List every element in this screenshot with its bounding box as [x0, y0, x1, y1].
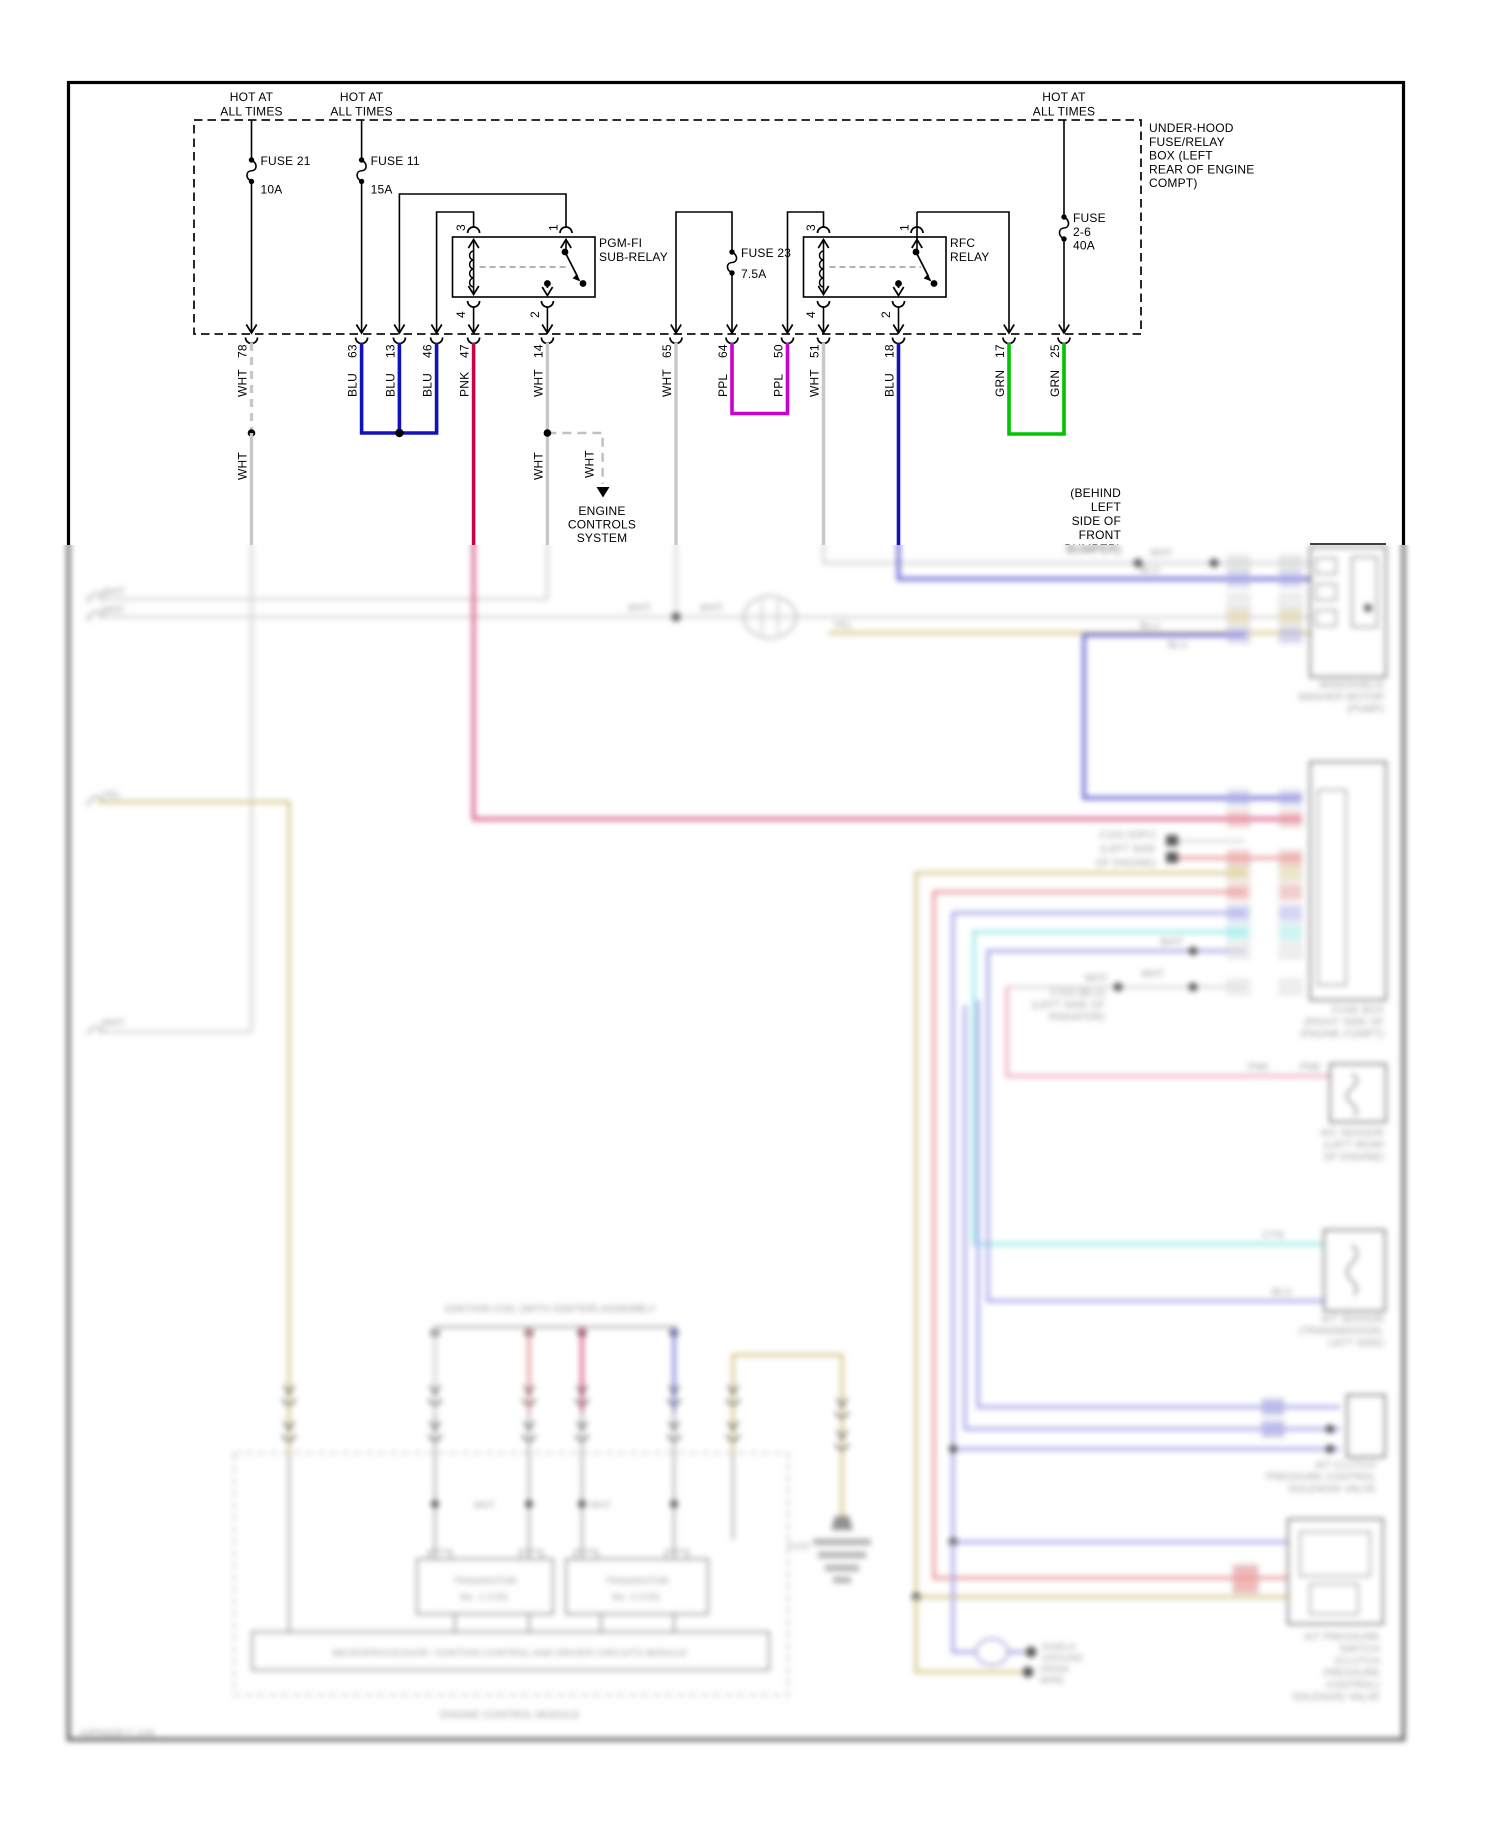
svg-text:TRANSISTOR: TRANSISTOR	[605, 1576, 668, 1587]
svg-text:WHT: WHT	[808, 369, 822, 397]
svg-text:TRANSISTOR: TRANSISTOR	[453, 1576, 516, 1587]
svg-text:A/T SENSOR: A/T SENSOR	[1322, 1314, 1384, 1325]
svg-text:BLU: BLU	[1272, 1287, 1292, 1298]
svg-text:15A: 15A	[371, 183, 393, 197]
svg-text:H4PA0535 C 1/06: H4PA0535 C 1/06	[80, 1728, 155, 1738]
svg-text:13: 13	[383, 344, 397, 358]
svg-text:ENGINE COMPT): ENGINE COMPT)	[1301, 1029, 1384, 1040]
svg-text:CONTROL): CONTROL)	[1326, 1680, 1380, 1691]
svg-text:ENGINE CONTROL MODULE: ENGINE CONTROL MODULE	[440, 1710, 580, 1721]
svg-text:25: 25	[1048, 344, 1062, 358]
svg-text:RELAY: RELAY	[950, 250, 989, 264]
svg-text:HOT AT: HOT AT	[230, 90, 274, 104]
svg-text:WHT: WHT	[1141, 969, 1164, 980]
svg-text:WIRE: WIRE	[1040, 1675, 1064, 1685]
svg-text:FRONT: FRONT	[1079, 528, 1122, 542]
svg-text:(CLUTCH: (CLUTCH	[1335, 1656, 1380, 1667]
svg-text:2: 2	[86, 798, 91, 808]
svg-text:3: 3	[804, 224, 818, 231]
svg-text:WHT: WHT	[700, 603, 723, 614]
svg-text:G101: G101	[787, 1541, 810, 1551]
svg-text:BLU: BLU	[346, 373, 360, 397]
svg-text:7.5A: 7.5A	[741, 267, 767, 281]
svg-text:1: 1	[547, 224, 561, 231]
svg-text:WHT: WHT	[236, 452, 250, 480]
svg-text:2: 2	[528, 311, 542, 318]
svg-text:PRESSURE CONTROL: PRESSURE CONTROL	[1266, 1472, 1376, 1483]
svg-text:C103 (BLU): C103 (BLU)	[1050, 988, 1105, 999]
svg-text:(LEFT SIDE: (LEFT SIDE	[1100, 844, 1156, 855]
svg-text:40A: 40A	[1073, 239, 1095, 253]
svg-text:MICROPROCESSOR / IGNITION CONT: MICROPROCESSOR / IGNITION CONTROL AND DR…	[333, 1648, 688, 1659]
svg-text:SUB-RELAY: SUB-RELAY	[599, 250, 668, 264]
svg-text:SHIELD: SHIELD	[1042, 1642, 1076, 1652]
svg-text:ENGINE: ENGINE	[578, 504, 625, 518]
svg-text:(PUMP): (PUMP)	[1347, 704, 1384, 715]
svg-text:HOT AT: HOT AT	[340, 90, 384, 104]
svg-text:14: 14	[531, 344, 545, 358]
svg-text:YEL: YEL	[102, 790, 122, 801]
svg-text:WHT: WHT	[660, 369, 674, 397]
svg-text:A/C SENSOR: A/C SENSOR	[1320, 1128, 1384, 1139]
svg-text:3: 3	[454, 224, 468, 231]
svg-text:No. 1 COIL: No. 1 COIL	[460, 1592, 510, 1603]
svg-text:CONTROLS: CONTROLS	[568, 518, 636, 532]
svg-text:51: 51	[808, 344, 822, 358]
svg-text:2: 2	[879, 311, 893, 318]
svg-text:LEFT SIDE): LEFT SIDE)	[1328, 1338, 1384, 1349]
svg-text:50: 50	[772, 344, 786, 358]
svg-text:WHT: WHT	[102, 605, 125, 616]
svg-text:RADIATOR): RADIATOR)	[1049, 1012, 1105, 1023]
svg-text:No. 2 COIL: No. 2 COIL	[612, 1592, 662, 1603]
svg-text:64: 64	[716, 344, 730, 358]
svg-text:WHT: WHT	[102, 587, 125, 598]
svg-text:FUSE 11: FUSE 11	[371, 154, 420, 168]
svg-text:PPL: PPL	[716, 374, 730, 397]
svg-text:UNDER-HOOD: UNDER-HOOD	[1149, 121, 1234, 135]
svg-text:4: 4	[454, 311, 468, 318]
svg-text:BLU: BLU	[1140, 621, 1160, 632]
svg-text:WHT: WHT	[236, 369, 250, 397]
svg-text:GROUND: GROUND	[1042, 1653, 1083, 1663]
svg-text:SWITCH: SWITCH	[1339, 1644, 1380, 1655]
svg-text:WHT: WHT	[102, 1018, 125, 1029]
svg-text:(BEHIND: (BEHIND	[1070, 486, 1121, 500]
svg-text:LEFT: LEFT	[1091, 500, 1122, 514]
svg-text:7: 7	[86, 1028, 91, 1038]
svg-text:6: 6	[86, 613, 91, 623]
svg-text:CYN: CYN	[1262, 1230, 1284, 1241]
svg-text:10A: 10A	[261, 183, 283, 197]
svg-text:GRN: GRN	[993, 370, 1007, 397]
svg-text:RFC: RFC	[950, 236, 975, 250]
svg-text:2-6: 2-6	[1073, 225, 1091, 239]
svg-text:OF ENGINE): OF ENGINE)	[1096, 858, 1156, 869]
svg-text:WHT: WHT	[583, 450, 597, 478]
svg-text:BOX (LEFT: BOX (LEFT	[1149, 149, 1213, 163]
svg-text:SOLENOID VALVE: SOLENOID VALVE	[1292, 1692, 1380, 1703]
svg-text:(LEFT REAR: (LEFT REAR	[1324, 1140, 1384, 1151]
svg-text:17: 17	[993, 344, 1007, 358]
svg-text:18: 18	[883, 344, 897, 358]
svg-text:HOT AT: HOT AT	[1042, 90, 1086, 104]
svg-text:PNK: PNK	[1248, 1062, 1269, 1073]
svg-text:SIDE OF: SIDE OF	[1072, 514, 1121, 528]
svg-text:ALL TIMES: ALL TIMES	[330, 105, 393, 119]
svg-text:WHT: WHT	[628, 603, 651, 614]
svg-text:FUSE 21: FUSE 21	[261, 154, 311, 168]
svg-text:78: 78	[236, 344, 250, 358]
svg-text:YEL: YEL	[833, 620, 853, 631]
svg-text:A/T CLUTCH: A/T CLUTCH	[1315, 1460, 1376, 1471]
svg-text:46: 46	[421, 344, 435, 358]
svg-text:WHT: WHT	[531, 369, 545, 397]
svg-text:ALL TIMES: ALL TIMES	[1033, 105, 1096, 119]
svg-text:PNK: PNK	[1300, 1062, 1321, 1073]
svg-text:C102 (GRY): C102 (GRY)	[1099, 830, 1156, 841]
svg-text:(LEFT SIDE OF: (LEFT SIDE OF	[1032, 1000, 1105, 1011]
svg-text:ALL TIMES: ALL TIMES	[220, 105, 283, 119]
svg-text:(TRANSMISSION,: (TRANSMISSION,	[1299, 1326, 1384, 1337]
svg-text:REAR OF ENGINE: REAR OF ENGINE	[1149, 162, 1254, 176]
svg-text:WHT: WHT	[1160, 937, 1183, 948]
svg-text:COMPT): COMPT)	[1149, 176, 1198, 190]
svg-text:GRN: GRN	[1048, 370, 1062, 397]
svg-text:1: 1	[898, 224, 912, 231]
svg-text:DRAIN: DRAIN	[1040, 1664, 1069, 1674]
svg-text:5: 5	[86, 595, 91, 605]
svg-text:WHT: WHT	[1150, 548, 1173, 559]
svg-text:BLU: BLU	[421, 373, 435, 397]
svg-text:4: 4	[804, 311, 818, 318]
svg-text:PPL: PPL	[772, 374, 786, 397]
svg-text:WHT: WHT	[474, 1500, 495, 1510]
svg-text:WHT: WHT	[590, 1500, 611, 1510]
svg-text:FUSE: FUSE	[1073, 211, 1106, 225]
svg-text:65: 65	[660, 344, 674, 358]
svg-text:WASHER MOTOR: WASHER MOTOR	[1298, 692, 1384, 703]
svg-text:BLU: BLU	[883, 373, 897, 397]
svg-text:A/T PRESSURE: A/T PRESSURE	[1304, 1632, 1380, 1643]
svg-text:PNK: PNK	[458, 372, 472, 397]
svg-text:47: 47	[458, 344, 472, 358]
svg-text:BLU: BLU	[1168, 640, 1188, 651]
svg-text:PGM-FI: PGM-FI	[599, 236, 642, 250]
svg-text:SYSTEM: SYSTEM	[577, 531, 628, 545]
svg-text:FUSE/RELAY: FUSE/RELAY	[1149, 135, 1225, 149]
svg-text:IGNITION COIL (WITH IGNITER) A: IGNITION COIL (WITH IGNITER) ASSEMBLY	[444, 1304, 655, 1315]
svg-text:WINDSHIELD: WINDSHIELD	[1319, 680, 1384, 691]
svg-text:(RIGHT SIDE OF: (RIGHT SIDE OF	[1304, 1017, 1384, 1028]
svg-text:OF ENGINE): OF ENGINE)	[1324, 1152, 1384, 1163]
svg-text:SOLENOID VALVE: SOLENOID VALVE	[1288, 1484, 1376, 1495]
svg-text:63: 63	[346, 344, 360, 358]
svg-text:BLU: BLU	[383, 373, 397, 397]
svg-text:WHT: WHT	[1085, 973, 1108, 984]
svg-text:PRESSURE: PRESSURE	[1323, 1668, 1380, 1679]
svg-text:BUMPER): BUMPER)	[1067, 544, 1121, 556]
svg-text:WHT: WHT	[531, 452, 545, 480]
svg-text:FUSE BOX: FUSE BOX	[1332, 1005, 1384, 1016]
svg-text:FUSE 23: FUSE 23	[741, 246, 791, 260]
svg-text:BLU: BLU	[1140, 565, 1160, 576]
